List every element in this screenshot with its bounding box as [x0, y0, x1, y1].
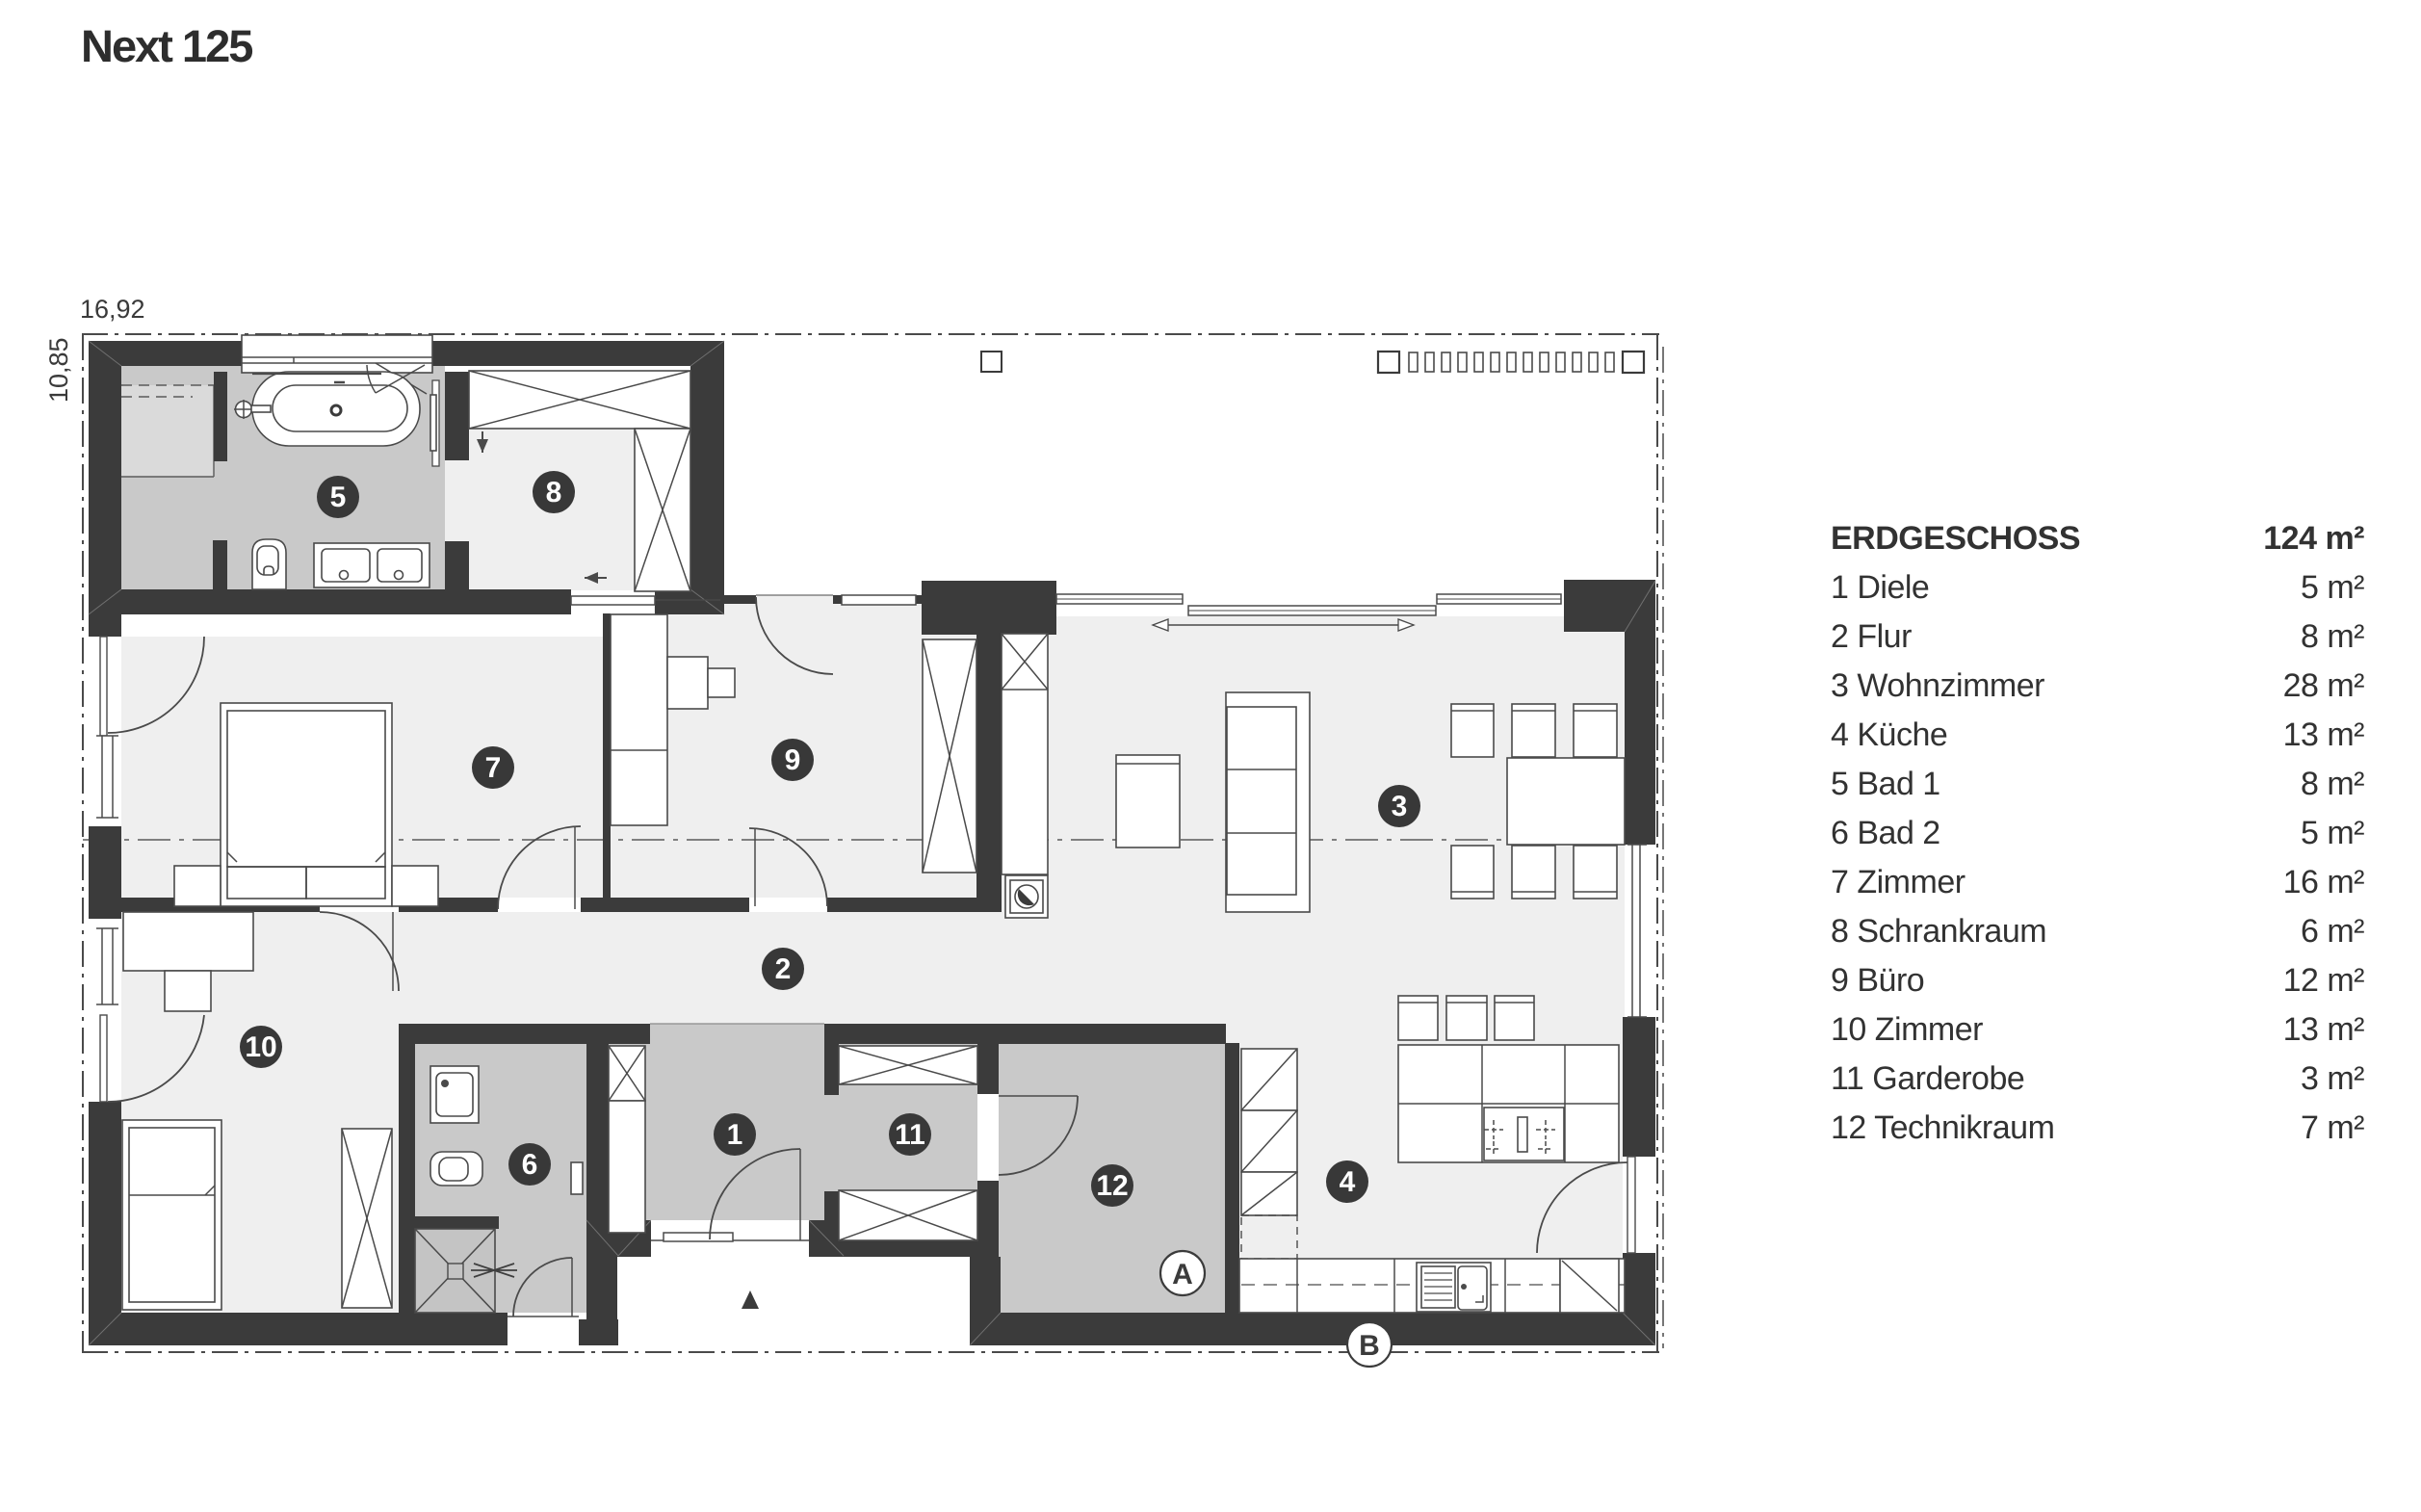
- svg-text:1 Diele: 1 Diele: [1831, 569, 1929, 606]
- svg-text:8 m²: 8 m²: [2301, 766, 2364, 802]
- svg-text:6 m²: 6 m²: [2301, 913, 2364, 950]
- svg-text:9: 9: [785, 744, 801, 776]
- svg-text:7 m²: 7 m²: [2301, 1109, 2364, 1146]
- svg-text:8 m²: 8 m²: [2301, 618, 2364, 655]
- svg-text:13 m²: 13 m²: [2283, 1011, 2365, 1048]
- svg-text:B: B: [1359, 1330, 1380, 1362]
- svg-text:12 Technikraum: 12 Technikraum: [1831, 1109, 2054, 1146]
- svg-text:2 Flur: 2 Flur: [1831, 618, 1912, 655]
- svg-text:11 Garderobe: 11 Garderobe: [1831, 1060, 2024, 1097]
- svg-text:1: 1: [727, 1119, 743, 1151]
- svg-text:2: 2: [775, 953, 792, 985]
- svg-text:5: 5: [330, 482, 347, 513]
- svg-text:10: 10: [245, 1031, 276, 1063]
- svg-text:3 Wohnzimmer: 3 Wohnzimmer: [1831, 667, 2044, 704]
- svg-text:8 Schrankraum: 8 Schrankraum: [1831, 913, 2046, 950]
- svg-text:13 m²: 13 m²: [2283, 717, 2365, 753]
- svg-text:Next 125: Next 125: [81, 20, 252, 71]
- svg-text:12 m²: 12 m²: [2283, 962, 2365, 999]
- svg-text:6 Bad 2: 6 Bad 2: [1831, 815, 1940, 851]
- svg-text:10,85: 10,85: [44, 337, 73, 403]
- svg-text:8: 8: [546, 477, 562, 508]
- svg-text:5 m²: 5 m²: [2301, 569, 2364, 606]
- svg-text:5 Bad 1: 5 Bad 1: [1831, 766, 1940, 802]
- svg-text:124 m²: 124 m²: [2263, 520, 2364, 557]
- svg-text:3: 3: [1392, 791, 1408, 822]
- svg-text:10 Zimmer: 10 Zimmer: [1831, 1011, 1983, 1048]
- svg-text:28 m²: 28 m²: [2283, 667, 2365, 704]
- svg-text:6: 6: [522, 1149, 538, 1181]
- svg-text:11: 11: [895, 1119, 925, 1151]
- svg-text:7 Zimmer: 7 Zimmer: [1831, 864, 1965, 900]
- svg-text:16,92: 16,92: [80, 295, 145, 324]
- svg-text:3 m²: 3 m²: [2301, 1060, 2364, 1097]
- svg-text:16 m²: 16 m²: [2283, 864, 2365, 900]
- svg-text:4: 4: [1340, 1166, 1356, 1198]
- svg-text:9 Büro: 9 Büro: [1831, 962, 1924, 999]
- svg-text:5 m²: 5 m²: [2301, 815, 2364, 851]
- svg-text:12: 12: [1096, 1170, 1128, 1202]
- svg-text:ERDGESCHOSS: ERDGESCHOSS: [1831, 520, 2080, 557]
- svg-text:A: A: [1172, 1259, 1193, 1290]
- svg-text:7: 7: [485, 752, 502, 784]
- svg-text:4 Küche: 4 Küche: [1831, 717, 1947, 753]
